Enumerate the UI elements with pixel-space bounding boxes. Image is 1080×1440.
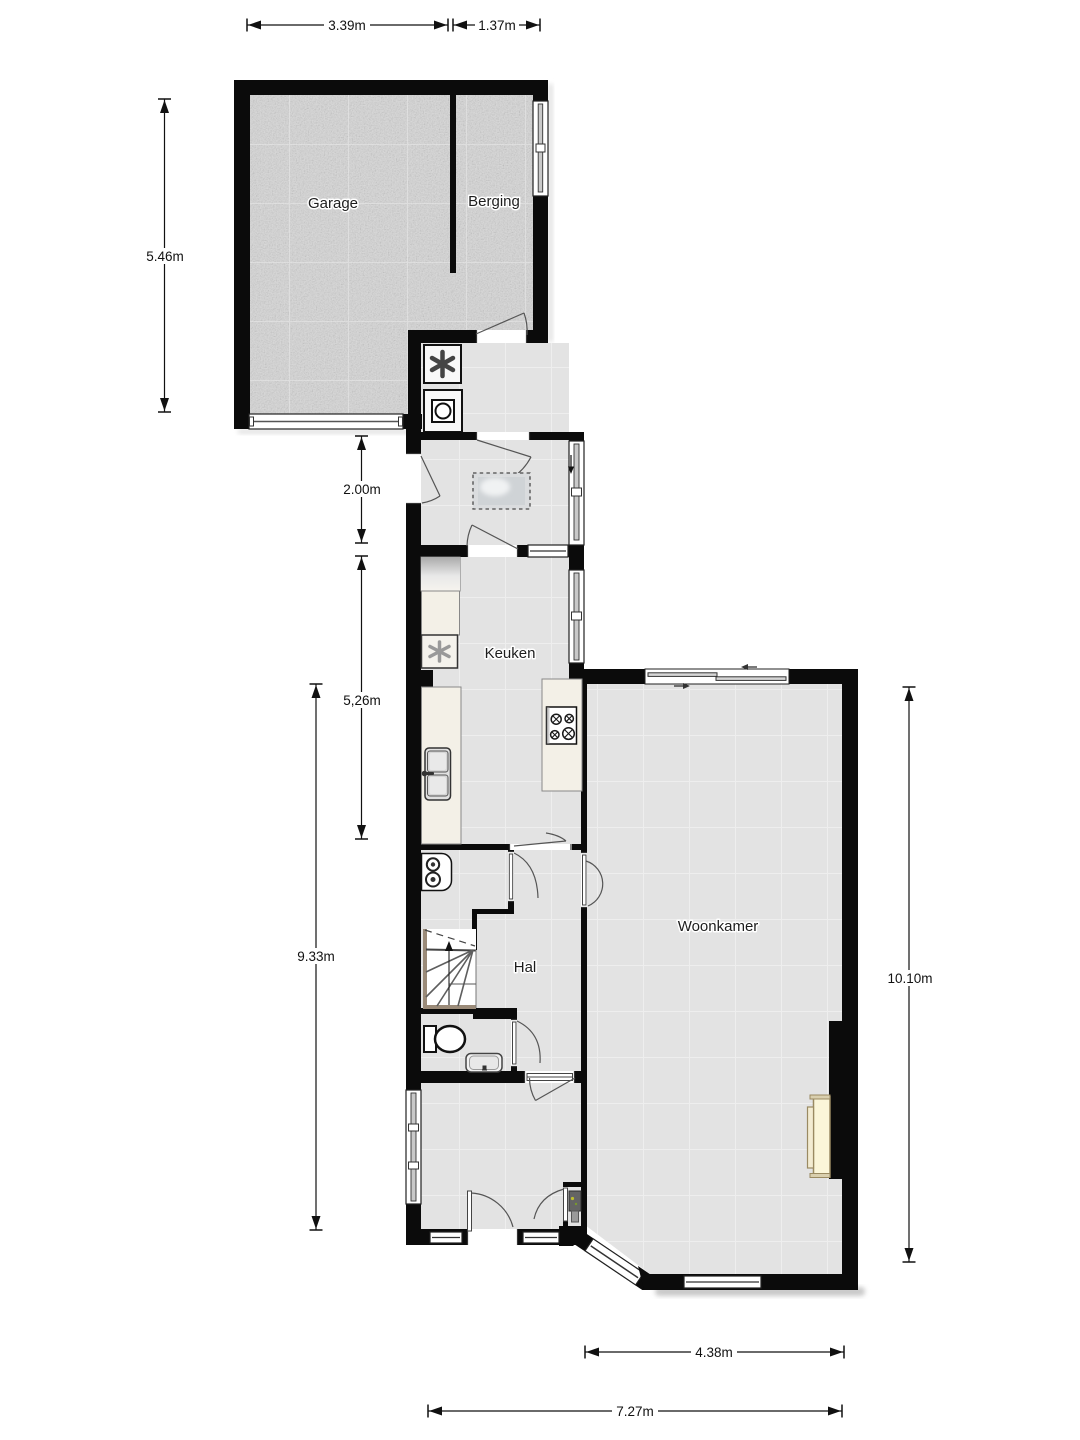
svg-text:4.38m: 4.38m (695, 1345, 733, 1360)
svg-text:5,26m: 5,26m (343, 693, 381, 708)
svg-text:Woonkamer: Woonkamer (678, 918, 759, 935)
svg-text:Hal: Hal (514, 959, 537, 976)
svg-text:10.10m: 10.10m (887, 971, 932, 986)
svg-text:3.39m: 3.39m (328, 18, 366, 33)
svg-text:9.33m: 9.33m (297, 949, 335, 964)
svg-text:Keuken: Keuken (485, 645, 536, 662)
svg-text:1.37m: 1.37m (478, 18, 516, 33)
svg-text:7.27m: 7.27m (616, 1404, 654, 1419)
svg-text:2.00m: 2.00m (343, 482, 381, 497)
svg-text:5.46m: 5.46m (146, 249, 184, 264)
svg-text:Berging: Berging (468, 193, 520, 210)
svg-text:Garage: Garage (308, 195, 358, 212)
